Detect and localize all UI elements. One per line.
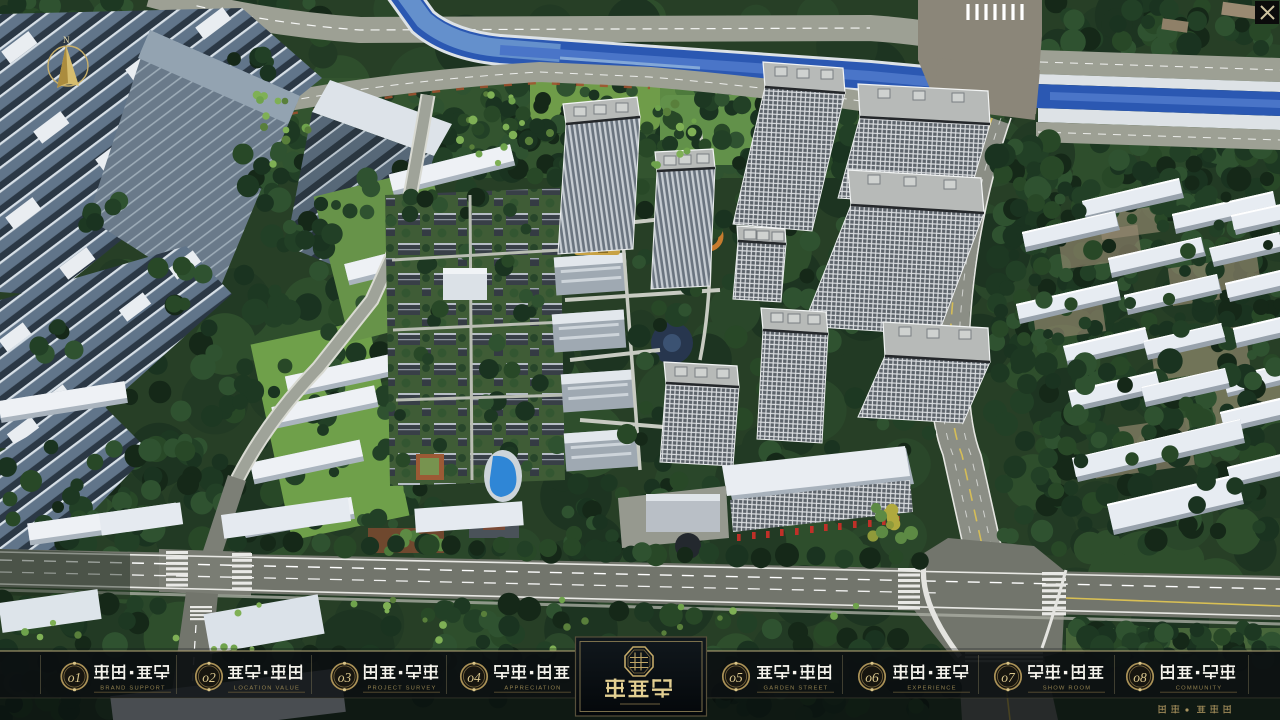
svg-text:o4: o4 [467,670,481,685]
svg-text:o2: o2 [202,670,216,685]
svg-text:EXPERIENCE: EXPERIENCE [907,686,956,692]
svg-text:SHOW ROOM: SHOW ROOM [1043,686,1091,692]
svg-text:o1: o1 [68,670,82,685]
svg-text:o8: o8 [1133,670,1147,685]
svg-text:PROJECT SURVEY: PROJECT SURVEY [367,686,436,692]
svg-text:APPRECIATION: APPRECIATION [504,686,561,692]
svg-text:LOCATION VALUE: LOCATION VALUE [234,686,300,692]
svg-text:BRAND SUPPORT: BRAND SUPPORT [100,686,165,692]
svg-text:o5: o5 [729,670,743,685]
svg-text:COMMUNITY: COMMUNITY [1176,686,1223,692]
svg-text:o6: o6 [865,670,879,685]
svg-text:o7: o7 [1001,670,1016,685]
svg-text:N: N [63,35,70,45]
svg-text:o3: o3 [338,670,352,685]
svg-text:GARDEN STREET: GARDEN STREET [764,686,829,692]
